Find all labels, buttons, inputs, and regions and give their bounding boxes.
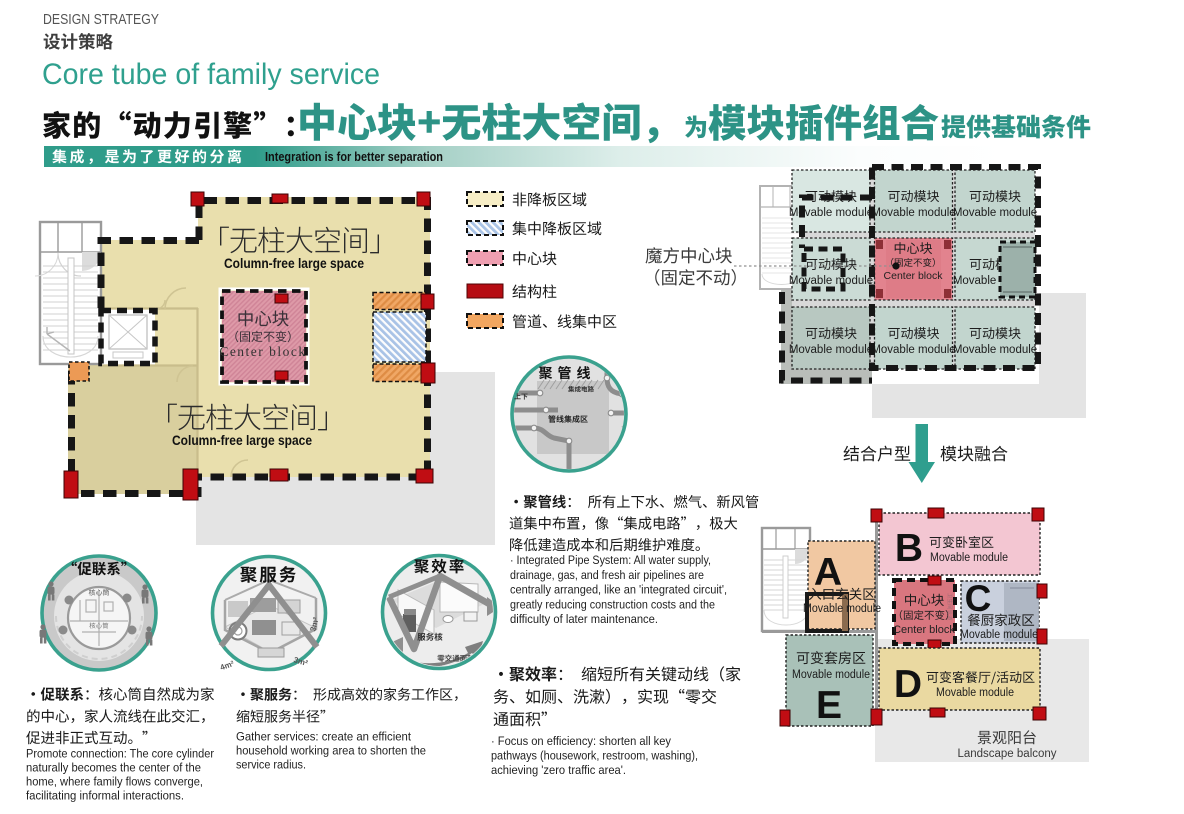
svg-text:household working area to shor: household working area to shorten the [236, 744, 426, 758]
svg-text:pathways (housework, restroom,: pathways (housework, restroom, washing), [491, 749, 698, 763]
svg-text:Movable module: Movable module [936, 687, 1014, 699]
svg-text:DESIGN STRATEGY: DESIGN STRATEGY [43, 12, 159, 28]
svg-text:drainage, gas, and fresh air p: drainage, gas, and fresh air pipelines a… [510, 568, 704, 582]
svg-text:Core tube of family service: Core tube of family service [42, 58, 380, 91]
svg-text:difficulty of later maintenanc: difficulty of later maintenance. [510, 612, 658, 626]
svg-text:Movable module: Movable module [803, 603, 881, 615]
svg-text:service radius.: service radius. [236, 758, 306, 772]
svg-text:naturally becomes the center o: naturally becomes the center of the [26, 761, 201, 775]
svg-text:Center block: Center block [884, 270, 944, 282]
svg-text:Movable module: Movable module [792, 669, 870, 681]
svg-text:· Integrated Pipe System: All: · Integrated Pipe System: All water supp… [510, 553, 711, 567]
svg-text:· Focus on efficiency: shorten: · Focus on efficiency: shorten all key [491, 734, 672, 748]
svg-text:4m²: 4m² [219, 659, 236, 672]
svg-text:achieving 'zero traffic area'.: achieving 'zero traffic area'. [491, 763, 626, 777]
svg-text:Movable module: Movable module [930, 552, 1008, 564]
svg-text:C: C [965, 578, 992, 619]
svg-text:Integration is for better sepa: Integration is for better separation [265, 150, 443, 164]
svg-text:facilitating informal interact: facilitating informal interactions. [26, 789, 184, 803]
svg-text:home, where family flows conve: home, where family flows converge, [26, 775, 203, 789]
svg-text:Center block: Center block [219, 344, 306, 359]
svg-text:Promote connection: The core c: Promote connection: The core cylinder [26, 747, 214, 761]
svg-text:D: D [894, 663, 922, 706]
svg-text:Center block: Center block [893, 624, 955, 636]
svg-text:greatly reducing construction: greatly reducing construction costs and … [510, 597, 715, 611]
svg-text:centrally arranged, like an 'i: centrally arranged, like an 'integrated … [510, 583, 727, 597]
svg-text:E: E [816, 684, 842, 727]
svg-text:B: B [895, 527, 923, 570]
svg-text:Gather services: create an eff: Gather services: create an efficient [236, 730, 412, 744]
svg-text:Landscape balcony: Landscape balcony [957, 748, 1056, 760]
svg-text:A: A [814, 551, 842, 594]
svg-text:Movable module: Movable module [960, 629, 1038, 641]
